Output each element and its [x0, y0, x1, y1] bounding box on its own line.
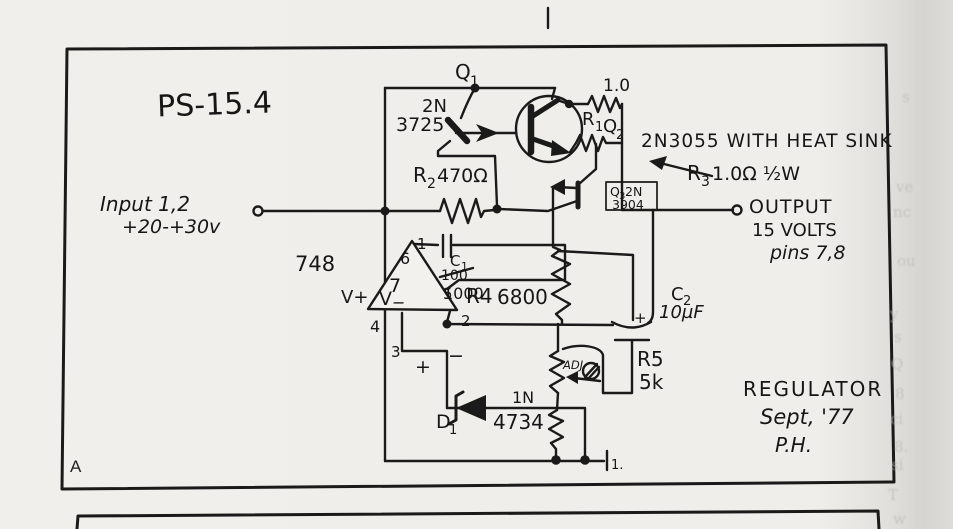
opamp-part-label: 748	[295, 252, 335, 276]
r4-label: R4	[466, 284, 493, 308]
r-top-value: 1.0	[603, 76, 630, 96]
d1-label: D1	[436, 411, 457, 438]
r5-label: R5	[637, 347, 664, 371]
potentiometer-r5	[550, 351, 564, 393]
opamp-pin1: 1	[417, 235, 427, 253]
figure-title: PS-15.4	[157, 86, 273, 125]
q2-heatsink-note: 2N3055 WITH HEAT SINK	[641, 131, 893, 152]
resistor-below-pot	[549, 410, 563, 461]
q2-emitter-arrow	[551, 140, 571, 156]
adj-label: ADJ	[562, 358, 584, 372]
bleed-fragment: Q	[891, 355, 903, 373]
opamp-pin4: 4	[370, 317, 380, 336]
opamp-pin3: 3	[391, 343, 401, 361]
bleed-fragment: T	[888, 486, 898, 504]
footer-date: Sept, '77	[760, 405, 854, 429]
bleed-fragment: w	[893, 510, 906, 528]
bleed-fragment: 8.	[894, 438, 908, 456]
input-label: Input 1,2	[100, 192, 190, 216]
q2-collector-stroke	[533, 100, 558, 116]
resistor-r2	[440, 199, 495, 223]
q3-label: Q32N3904	[610, 184, 644, 212]
q1-base-bar	[448, 120, 467, 141]
bleed-fragment: ci	[890, 410, 903, 428]
d1-part2: 4734	[493, 410, 544, 434]
panel-label: A	[70, 457, 82, 476]
r3-note-arrow	[649, 156, 667, 170]
opamp-pin7: 7	[389, 275, 401, 297]
d1-zener-triangle	[456, 395, 486, 421]
scanned-schematic-page: PS-15.4 Input 1,2 +20-+30v OUTPUT 15 VOL…	[0, 0, 953, 529]
footer-initials: P.H.	[775, 433, 812, 457]
q1-ref: Q1	[455, 60, 479, 90]
bleed-fragment: s	[894, 328, 902, 346]
pot-wiper-arrow	[566, 371, 578, 384]
resistor-r4	[552, 250, 570, 324]
bleed-fragment: y	[890, 305, 898, 323]
c2-polarity: +	[634, 309, 647, 327]
r4-value: 6800	[497, 285, 548, 309]
output-pins-label: pins 7,8	[769, 242, 846, 264]
opamp-pin2: 2	[461, 312, 471, 330]
wire-q2-top-node	[560, 101, 588, 104]
input-voltage-label: +20-+30v	[122, 216, 221, 238]
footer-title: REGULATOR	[743, 377, 883, 401]
r1-ref: R1	[582, 109, 603, 135]
wire-q3-emitter-down	[553, 188, 560, 250]
opamp-minus-sign: −	[448, 345, 464, 367]
schematic-canvas: PS-15.4 Input 1,2 +20-+30v OUTPUT 15 VOL…	[0, 0, 953, 529]
c1-old-value: 100	[441, 268, 468, 284]
wire-output-to-c2	[648, 210, 653, 323]
r3-note: R31.0Ω ½W	[687, 161, 800, 190]
wire-r2-to-q3-base	[499, 201, 577, 211]
output-voltage-label: 15 VOLTS	[752, 220, 837, 241]
wire-pin2	[447, 311, 613, 325]
d1-part1: 1N	[512, 388, 534, 407]
output-label: OUTPUT	[749, 196, 832, 218]
c2-value: 10µF	[659, 302, 704, 323]
bleed-fragment: nc	[893, 203, 911, 221]
wire-c2-bottom	[603, 341, 632, 393]
opamp-vplus: V+	[341, 287, 368, 308]
next-figure-border	[77, 511, 879, 529]
input-terminal	[254, 207, 263, 216]
r2-label: R2470Ω	[413, 163, 488, 192]
r5-value: 5k	[639, 370, 664, 394]
opamp-pin6: 6	[400, 249, 410, 268]
bleed-fragment: si	[891, 456, 904, 474]
bleed-fragment: ou	[897, 252, 916, 270]
bleed-fragment: 8	[895, 385, 905, 403]
ground-mark: 1.	[611, 458, 623, 473]
q1-collector-lead	[461, 88, 475, 118]
bleed-fragment: ve	[896, 178, 913, 196]
q1-part-line2: 3725	[396, 114, 444, 136]
opamp-plus-sign: +	[415, 356, 431, 378]
bleed-fragment: s	[902, 88, 910, 106]
